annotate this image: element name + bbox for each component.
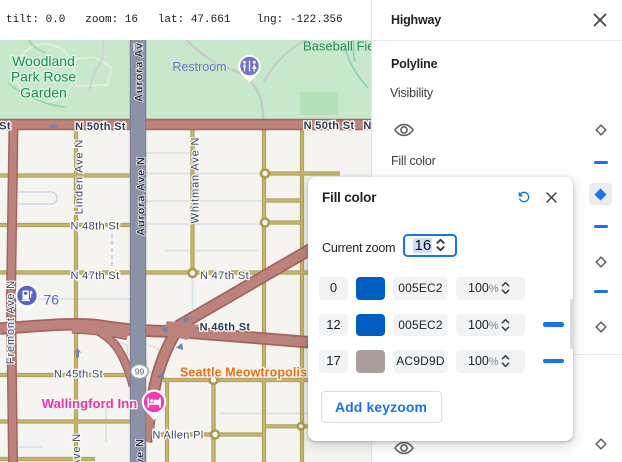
svg-text:Aurora Ave N: Aurora Ave N bbox=[135, 438, 147, 462]
svg-text:Whitman Ave N: Whitman Ave N bbox=[190, 137, 202, 224]
svg-text:99: 99 bbox=[135, 367, 145, 377]
svg-text:Linden Ave N: Linden Ave N bbox=[74, 139, 86, 214]
svg-text:Park Rose: Park Rose bbox=[11, 69, 77, 85]
svg-text:Wallingford Inn: Wallingford Inn bbox=[42, 396, 138, 411]
svg-text:Seattle Meowtropolis: Seattle Meowtropolis bbox=[180, 365, 307, 379]
svg-text:N 50th St: N 50th St bbox=[75, 121, 126, 133]
svg-text:76: 76 bbox=[44, 292, 60, 308]
svg-text:Aurora Av: Aurora Av bbox=[134, 42, 146, 102]
svg-text:Restroom: Restroom bbox=[172, 60, 226, 74]
svg-text:N 45th St: N 45th St bbox=[54, 369, 103, 381]
svg-text:Baseball Fie: Baseball Fie bbox=[303, 40, 371, 54]
svg-text:N: N bbox=[363, 120, 371, 132]
svg-text:Fremont Ave N: Fremont Ave N bbox=[5, 280, 17, 364]
svg-text:N 47th St: N 47th St bbox=[70, 270, 119, 282]
svg-text:Woodland: Woodland bbox=[12, 53, 75, 69]
svg-text:N 47th St: N 47th St bbox=[200, 270, 249, 282]
svg-text:N 50th St: N 50th St bbox=[304, 120, 355, 132]
svg-text:Garden: Garden bbox=[20, 85, 67, 101]
svg-text:N 48th St: N 48th St bbox=[70, 221, 119, 233]
svg-text:St: St bbox=[0, 120, 11, 132]
svg-text:N 46th St: N 46th St bbox=[200, 321, 251, 333]
svg-text:Ave N: Ave N bbox=[71, 433, 83, 462]
svg-text:Aurora Ave N: Aurora Ave N bbox=[136, 156, 148, 236]
svg-text:N Allen Pl: N Allen Pl bbox=[152, 429, 203, 441]
